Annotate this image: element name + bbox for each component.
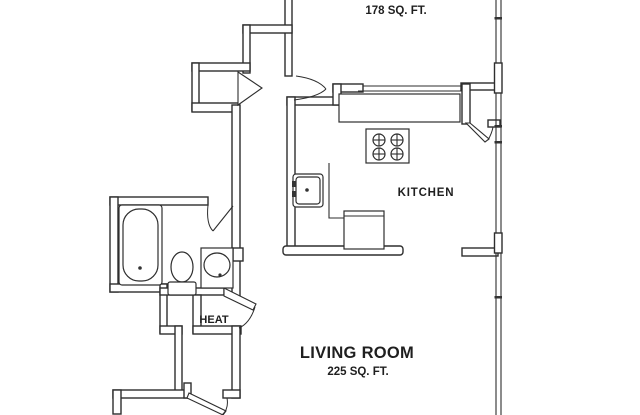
sink-control [292,181,296,187]
wall [462,248,498,256]
floor-plan-canvas: 178 SQ. FT. KITCHEN HEAT LIVING ROOM 225… [0,0,640,415]
kitchen-label: KITCHEN [398,187,455,199]
exterior-windows [495,0,503,415]
kitchen-fixtures [292,91,460,249]
wall [110,197,208,205]
faucet-dot [218,273,221,276]
wall [113,390,121,414]
living-room-label: LIVING ROOM [300,344,414,362]
wall [110,197,118,292]
wall [283,246,403,255]
floor-plan: 178 SQ. FT. KITCHEN HEAT LIVING ROOM 225… [0,0,640,415]
bathtub [119,205,162,285]
heat-label: HEAT [199,314,228,326]
dishwasher [344,211,384,249]
bathroom-fixtures [119,205,233,295]
kitchen-sink [292,174,323,207]
bathroom-sink-vanity [201,248,233,288]
window-tick [495,296,503,299]
living-room-area-label: 225 SQ. FT. [327,366,388,378]
wall [192,63,250,71]
sink-control [292,191,296,197]
stove-4-burner [366,129,409,163]
bottom-closet-door [187,393,226,415]
wall [233,248,243,261]
window-tick [495,125,503,128]
toilet [168,252,196,295]
bedroom-area-label: 178 SQ. FT. [365,5,426,17]
wall [462,84,470,124]
bathroom-door [213,206,233,231]
wall [285,0,292,76]
door-swing-arc [488,127,493,140]
wall [175,326,182,397]
closet-door [238,72,262,105]
door-swing-arc [208,205,213,231]
wall [495,63,503,93]
door-swing-arc [296,76,326,89]
sink-drain [305,188,309,192]
pantry-door [466,123,489,142]
wall [113,390,190,398]
wall [495,233,503,253]
window-tick [495,17,503,20]
wall [223,390,240,398]
tub-drain [138,266,142,270]
window-tick [495,141,503,144]
wall [232,326,240,398]
